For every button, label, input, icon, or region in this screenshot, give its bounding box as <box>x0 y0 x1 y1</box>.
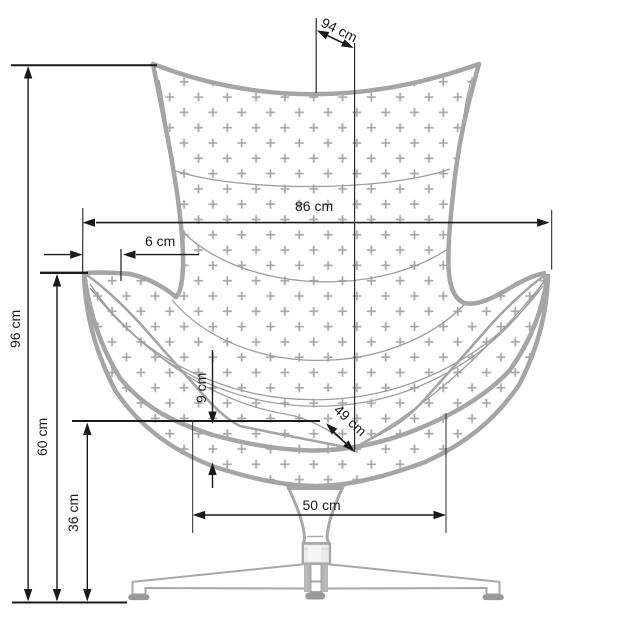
svg-text:96 cm: 96 cm <box>7 310 23 348</box>
svg-text:9 cm: 9 cm <box>193 373 209 403</box>
svg-text:50 cm: 50 cm <box>303 497 341 513</box>
svg-text:36 cm: 36 cm <box>65 494 81 532</box>
svg-text:86 cm: 86 cm <box>295 198 333 214</box>
svg-text:6 cm: 6 cm <box>145 233 175 249</box>
svg-text:60 cm: 60 cm <box>34 418 50 456</box>
